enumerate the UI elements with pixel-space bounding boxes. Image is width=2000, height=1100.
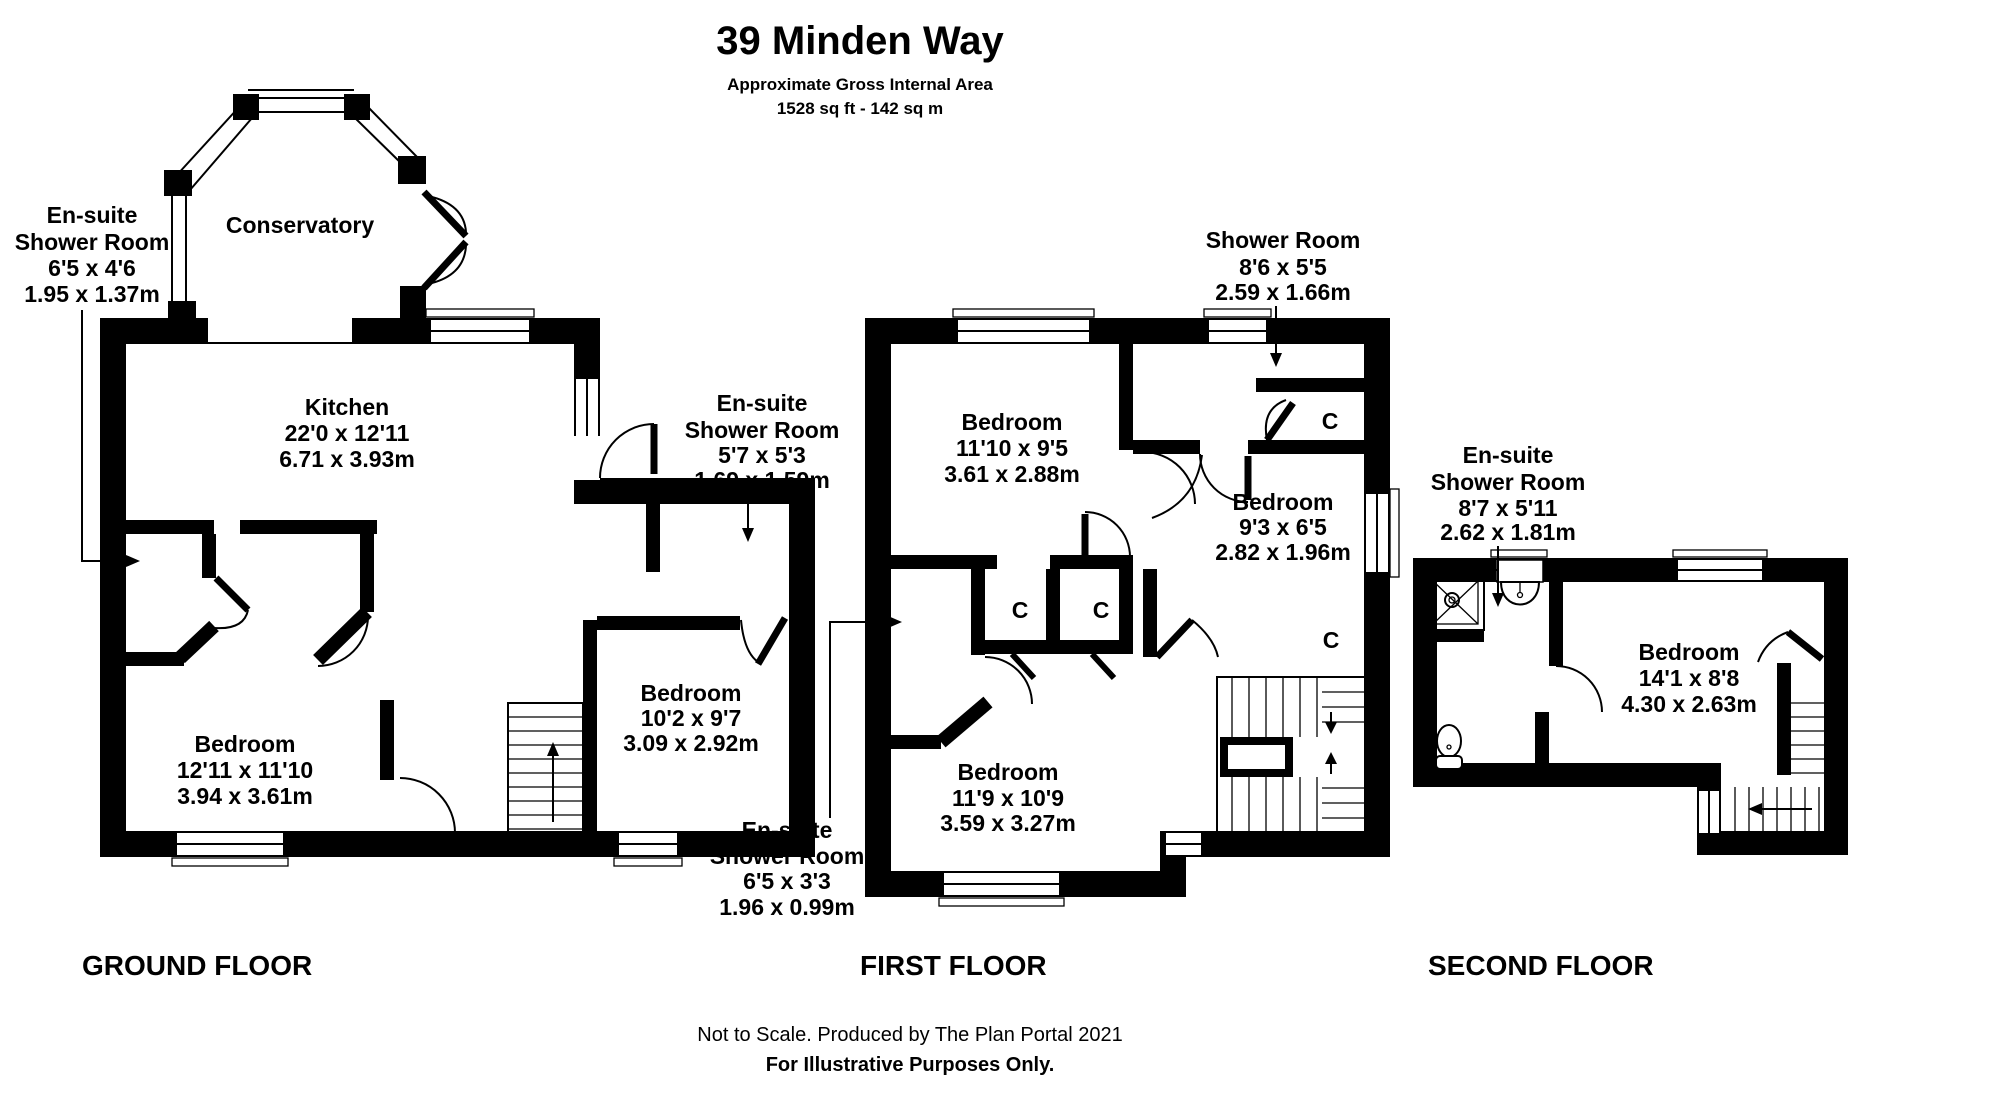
conservatory: Conservatory <box>164 90 466 333</box>
page-area: 1528 sq ft - 142 sq m <box>777 99 943 118</box>
room-dims-imperial: 11'9 x 10'9 <box>952 785 1064 811</box>
room-dims-metric: 6.71 x 3.93m <box>279 446 415 472</box>
room-name: En-suite <box>742 817 833 843</box>
page-title: 39 Minden Way <box>716 19 1004 63</box>
room-name: Kitchen <box>305 394 389 420</box>
room-dims-metric: 2.62 x 1.81m <box>1440 519 1576 545</box>
conservatory-french-doors <box>424 192 466 288</box>
room-name: Shower Room <box>1206 227 1361 253</box>
room-dims-metric: 1.69 x 1.59m <box>694 467 830 493</box>
room-name2: Shower Room <box>685 417 840 443</box>
room-dims-imperial: 22'0 x 12'11 <box>285 420 410 446</box>
room-dims-imperial: 8'6 x 5'5 <box>1239 254 1327 280</box>
bedroom-left-label: Bedroom 12'11 x 11'10 3.94 x 3.61m <box>177 731 313 809</box>
room-name2: Shower Room <box>1431 469 1586 495</box>
room-dims-metric: 3.09 x 2.92m <box>623 730 759 756</box>
floorplan-page: 39 Minden Way Approximate Gross Internal… <box>0 0 2000 1100</box>
room-name: Bedroom <box>1233 489 1334 515</box>
footer: Not to Scale. Produced by The Plan Porta… <box>697 1024 1122 1076</box>
room-dims-metric: 1.95 x 1.37m <box>24 281 160 307</box>
room-name2: Shower Room <box>710 843 865 869</box>
floor-plan-canvas: 39 Minden Way Approximate Gross Internal… <box>0 0 2000 1100</box>
footer-illustrative: For Illustrative Purposes Only. <box>766 1054 1055 1076</box>
closet-label: C <box>1093 597 1110 623</box>
closet-label: C <box>1323 627 1340 653</box>
bedroom-top-label: Bedroom 11'10 x 9'5 3.61 x 2.88m <box>944 409 1080 487</box>
room-name: Bedroom <box>1639 639 1740 665</box>
room-dims-metric: 2.82 x 1.96m <box>1215 539 1351 565</box>
closet-label: C <box>1012 597 1029 623</box>
closet-label: C <box>1322 408 1339 434</box>
stair-void <box>1224 741 1289 773</box>
room-dims-imperial: 10'2 x 9'7 <box>641 705 741 731</box>
room-name: Bedroom <box>958 759 1059 785</box>
room-dims-imperial: 6'5 x 3'3 <box>743 868 831 894</box>
room-dims-metric: 3.94 x 3.61m <box>177 783 313 809</box>
room-dims-imperial: 11'10 x 9'5 <box>956 435 1068 461</box>
room-dims-metric: 2.59 x 1.66m <box>1215 279 1351 305</box>
room-dims-metric: 3.61 x 2.88m <box>944 461 1080 487</box>
room-dims-metric: 3.59 x 3.27m <box>940 810 1076 836</box>
room-name: En-suite <box>1463 442 1554 468</box>
room-dims-metric: 4.30 x 2.63m <box>1621 691 1757 717</box>
second-floor-title: SECOND FLOOR <box>1428 950 1654 981</box>
room-dims-metric: 1.96 x 0.99m <box>719 894 855 920</box>
room-dims-imperial: 9'3 x 6'5 <box>1239 514 1327 540</box>
bedroom-right-label: Bedroom 10'2 x 9'7 3.09 x 2.92m <box>623 680 759 756</box>
room-name: En-suite <box>717 390 808 416</box>
conservatory-opening <box>207 314 353 346</box>
title-block: 39 Minden Way Approximate Gross Internal… <box>716 19 1004 118</box>
page-subtitle: Approximate Gross Internal Area <box>727 75 993 94</box>
toilet <box>1436 725 1462 769</box>
room-dims-imperial: 14'1 x 8'8 <box>1639 665 1740 691</box>
footer-disclaimer: Not to Scale. Produced by The Plan Porta… <box>697 1024 1122 1046</box>
room-dims-imperial: 12'11 x 11'10 <box>177 757 313 783</box>
room-dims-imperial: 6'5 x 4'6 <box>48 255 136 281</box>
room-name: En-suite <box>47 202 138 228</box>
conservatory-label: Conservatory <box>226 212 374 238</box>
room-dims-imperial: 8'7 x 5'11 <box>1458 495 1557 521</box>
ground-floor-title: GROUND FLOOR <box>82 950 312 981</box>
room-name2: Shower Room <box>15 229 170 255</box>
bedroom-second-label: Bedroom 14'1 x 8'8 4.30 x 2.63m <box>1621 639 1757 717</box>
second-floor-plan: En-suite Shower Room 8'7 x 5'11 2.62 x 1… <box>1425 442 1836 981</box>
bedroom-bottom-label: Bedroom 11'9 x 10'9 3.59 x 3.27m <box>940 759 1076 836</box>
room-dims-imperial: 5'7 x 5'3 <box>718 442 806 468</box>
room-name: Bedroom <box>962 409 1063 435</box>
first-floor-title: FIRST FLOOR <box>860 950 1047 981</box>
room-name: Bedroom <box>641 680 742 706</box>
room-name: Bedroom <box>195 731 296 757</box>
